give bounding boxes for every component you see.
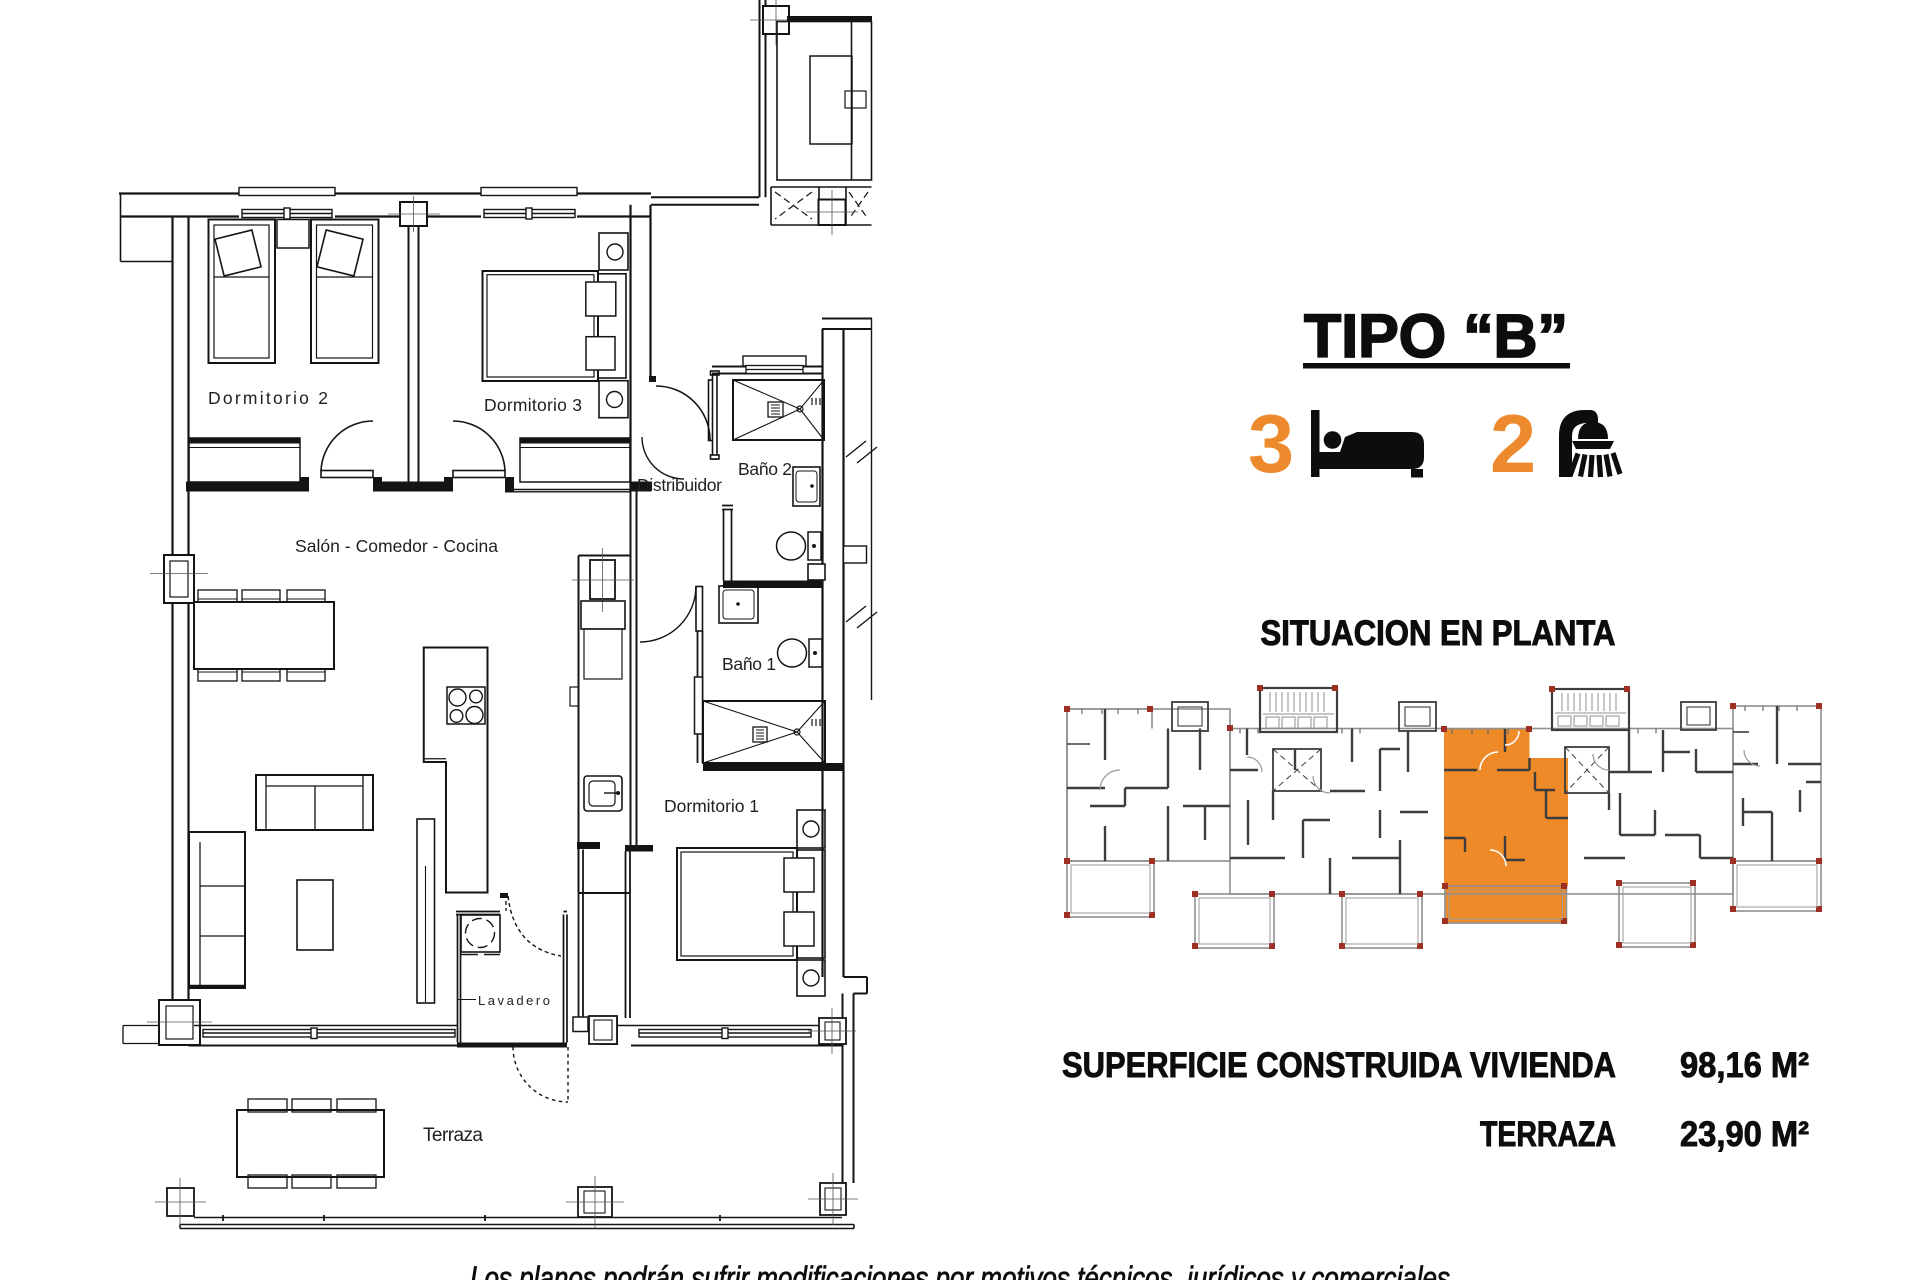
svg-text:Dormitorio 3: Dormitorio 3 [484, 395, 582, 415]
svg-text:Salón - Comedor - Cocina: Salón - Comedor - Cocina [295, 536, 498, 556]
svg-text:3: 3 [1248, 397, 1294, 490]
svg-text:Los planos podrán sufrir modif: Los planos podrán sufrir modificaciones … [470, 1260, 1450, 1280]
svg-text:Baño 1: Baño 1 [722, 654, 776, 674]
svg-text:TIPO “B”: TIPO “B” [1304, 302, 1568, 370]
svg-text:2: 2 [1490, 397, 1536, 490]
svg-text:98,16 M²: 98,16 M² [1680, 1046, 1809, 1085]
svg-text:23,90 M²: 23,90 M² [1680, 1115, 1809, 1154]
svg-text:Distribuidor: Distribuidor [637, 475, 722, 495]
svg-text:Baño 2: Baño 2 [738, 459, 792, 479]
svg-text:SUPERFICIE CONSTRUIDA VIVIENDA: SUPERFICIE CONSTRUIDA VIVIENDA [1062, 1046, 1616, 1085]
svg-text:Dormitorio 1: Dormitorio 1 [664, 796, 759, 816]
svg-text:SITUACION EN PLANTA: SITUACION EN PLANTA [1261, 614, 1616, 653]
svg-text:Terraza: Terraza [423, 1125, 483, 1146]
svg-text:TERRAZA: TERRAZA [1480, 1115, 1616, 1154]
